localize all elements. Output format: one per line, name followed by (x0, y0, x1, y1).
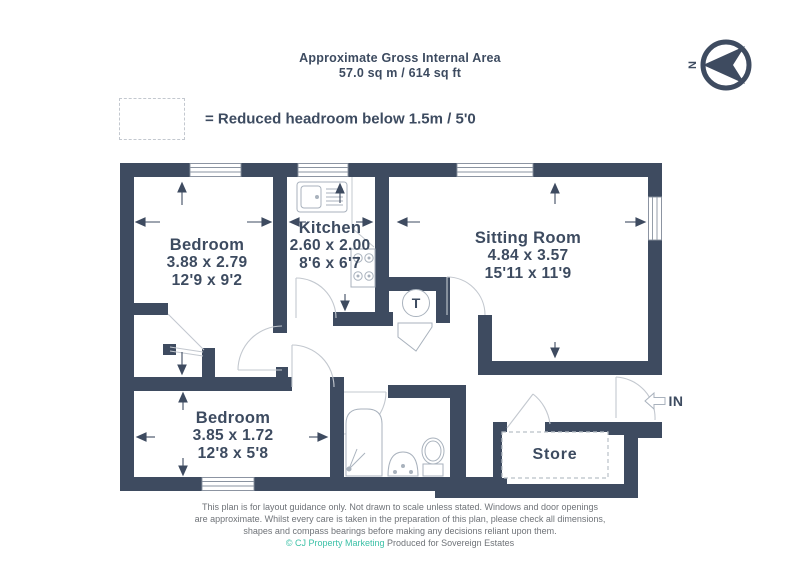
room-label-bedroom-2: Bedroom 3.85 x 1.72 12'8 x 5'8 (193, 409, 274, 463)
wall-bedroom1-kitchen (273, 177, 287, 333)
page-title: Approximate Gross Internal Area (299, 51, 501, 65)
wall-store-right (624, 435, 638, 498)
door-store (507, 394, 550, 428)
floorplan-drawing: N (0, 0, 800, 565)
room-imperial: 15'11 x 11'9 (475, 265, 581, 283)
wall-closet-stub (134, 303, 168, 315)
floorplan-page: N Approximate Gross Internal Area 57.0 s… (0, 0, 800, 565)
room-metric: 3.88 x 2.79 (167, 254, 248, 272)
disclaimer-line-3: shapes and compass bearings before makin… (243, 525, 556, 537)
tank-closet-door (398, 323, 432, 351)
window-bedroom1 (190, 164, 241, 177)
toilet-icon (422, 438, 444, 476)
room-imperial: 8'6 x 6'7 (290, 255, 371, 273)
compass-north-label: N (687, 61, 699, 69)
window-sitting-right (649, 197, 662, 240)
wall-sitting-bottom (478, 361, 662, 375)
reduced-headroom-legend-swatch (119, 98, 185, 140)
wall-door-jamb (276, 367, 288, 377)
wall-closet-cap-a (163, 344, 176, 355)
room-name: Kitchen (290, 219, 371, 237)
wall-bathroom-top (388, 385, 450, 398)
disclaimer-line-1: This plan is for layout guidance only. N… (202, 501, 598, 513)
wall-right (648, 163, 662, 375)
room-metric: 4.84 x 3.57 (475, 247, 581, 265)
credit-marketing: © CJ Property Marketing (286, 538, 385, 548)
shower-icon (346, 409, 382, 476)
wall-closet-stub-vertical (202, 355, 215, 381)
door-bedroom2 (292, 345, 334, 387)
window-bedroom2 (202, 478, 254, 491)
wall-bathroom-left (330, 377, 344, 491)
window-kitchen (298, 164, 348, 177)
room-name: Sitting Room (475, 229, 581, 247)
room-name: Bedroom (193, 409, 274, 427)
room-imperial: 12'8 x 5'8 (193, 445, 274, 463)
room-imperial: 12'9 x 9'2 (167, 272, 248, 290)
wall-bathroom-right (450, 385, 466, 491)
page-area: 57.0 sq m / 614 sq ft (339, 66, 461, 80)
door-kitchen (296, 278, 336, 318)
room-metric: 2.60 x 2.00 (290, 237, 371, 255)
room-label-store: Store (533, 446, 578, 464)
room-label-bedroom-1: Bedroom 3.88 x 2.79 12'9 x 9'2 (167, 236, 248, 290)
wall-tank-closet-right (436, 291, 450, 323)
entrance-label: IN (669, 393, 684, 409)
room-label-sitting-room: Sitting Room 4.84 x 3.57 15'11 x 11'9 (475, 229, 581, 283)
window-sitting-top (457, 164, 533, 177)
compass-icon: N (687, 42, 749, 88)
credit-line: © CJ Property Marketing Produced for Sov… (286, 537, 514, 549)
room-metric: 3.85 x 1.72 (193, 427, 274, 445)
tank-symbol: T (402, 289, 430, 317)
disclaimer-line-2: are approximate. Whilst every care is ta… (195, 513, 606, 525)
credit-produced: Produced for Sovereign Estates (387, 538, 514, 548)
wall-kitchen-sitting (375, 177, 389, 326)
reduced-headroom-legend-label: = Reduced headroom below 1.5m / 5'0 (205, 111, 476, 128)
wall-kitchen-bottom (333, 312, 393, 326)
room-label-kitchen: Kitchen 2.60 x 2.00 8'6 x 6'7 (290, 219, 371, 273)
room-name: Bedroom (167, 236, 248, 254)
wall-left (120, 163, 134, 491)
basin-icon (388, 452, 418, 476)
